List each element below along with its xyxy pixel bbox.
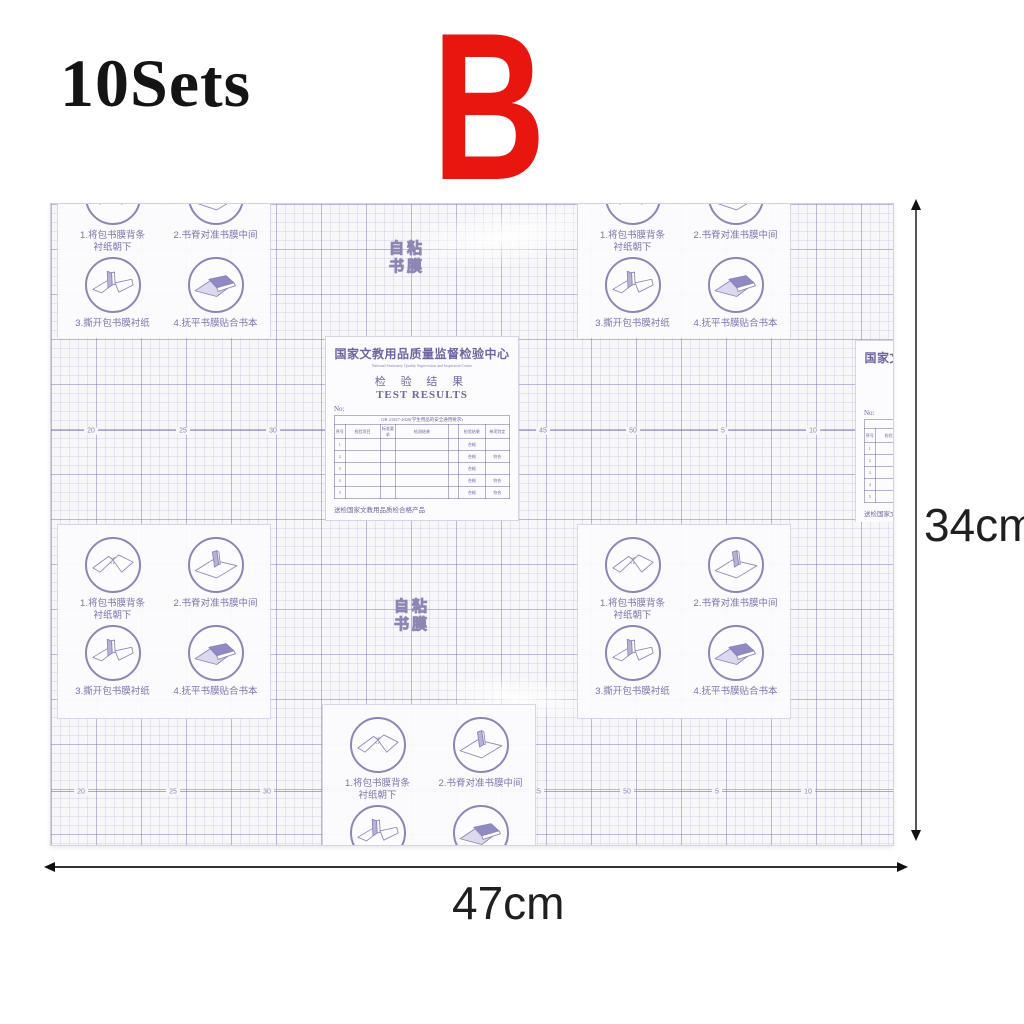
step-label: 1.将包书膜背条 衬纸朝下: [80, 230, 145, 255]
cert-cell: 合格: [459, 475, 485, 487]
cert-cell: [345, 439, 380, 451]
book-spine-align-icon: [458, 727, 504, 763]
step-label: 2.书脊对准书膜中间: [174, 598, 258, 622]
arrow-left-icon: [44, 862, 55, 872]
test-certificate: 国家文教用品质量监督检验中心 National Stationery Quali…: [855, 340, 893, 522]
step-label: 1.将包书膜背条 衬纸朝下: [80, 598, 145, 623]
instruction-step-4: 4.抚平书膜贴合书本: [685, 257, 786, 338]
cert-cell: [448, 439, 459, 451]
cert-header-cell: 检验项目: [875, 429, 893, 443]
cert-cell: [345, 463, 380, 475]
brand-char: 膜: [411, 616, 428, 633]
step-label: 3.撕开包书膜衬纸: [595, 318, 669, 338]
instruction-steps-panel: 1.将包书膜背条 衬纸朝下 2.书脊对准书膜中间 3.: [57, 524, 271, 719]
quantity-label: 10Sets: [60, 44, 251, 123]
brand-char: 自: [388, 240, 405, 257]
cert-cell: 符合: [485, 451, 510, 463]
cert-cell: [396, 475, 449, 487]
certificate-table: 序号检验项目标准要求检测结果检验结果单项判定 1合格2合格符合3合格4合格符合5…: [334, 424, 510, 499]
step-circle: [708, 204, 764, 225]
variant-letter: B: [432, 2, 546, 212]
peel-liner-icon: [355, 815, 401, 845]
step-label: 4.抚平书膜贴合书本: [694, 318, 778, 338]
instruction-step-4: 4.抚平书膜贴合书本: [165, 625, 266, 710]
brand-char: 粘: [406, 240, 423, 257]
width-dimension-label: 47cm: [452, 876, 564, 930]
cert-cell: 3: [335, 463, 346, 475]
cert-row: 5合格符合: [335, 487, 510, 499]
brand-char: 粘: [411, 598, 428, 615]
step-label: 2.书脊对准书膜中间: [694, 230, 778, 254]
cert-cell: [485, 463, 510, 475]
cert-cell: 1: [335, 439, 346, 451]
cert-row: 5合格符合: [865, 491, 894, 503]
instruction-step-3: 3.撕开包书膜衬纸: [582, 257, 683, 338]
step-label: 1.将包书膜背条 衬纸朝下: [600, 230, 665, 255]
instruction-steps-panel: 1.将包书膜背条 衬纸朝下 2.书脊对准书膜中间 3.: [322, 704, 536, 845]
open-book-icon: [610, 204, 656, 215]
cert-header-row: 序号检验项目标准要求检测结果检验结果单项判定: [335, 425, 510, 439]
instruction-step-2: 2.书脊对准书膜中间: [685, 537, 786, 623]
cert-header-cell: [448, 425, 459, 439]
cert-cell: [396, 487, 449, 499]
step-circle: [85, 625, 141, 681]
instruction-panel-bottom: 1.将包书膜背条 衬纸朝下 2.书脊对准书膜中间 3.: [322, 704, 536, 845]
certificate-center: 国家文教用品质量监督检验中心 National Stationery Quali…: [325, 336, 519, 521]
certificate-no-label: No:: [334, 405, 510, 413]
step-label: 2.书脊对准书膜中间: [174, 230, 258, 254]
brand-mark-self-adhesive-film: 自 粘 书 膜: [388, 240, 423, 275]
cert-cell: 合格: [459, 487, 485, 499]
step-label: 4.抚平书膜贴合书本: [694, 686, 778, 710]
instruction-step-1: 1.将包书膜背条 衬纸朝下: [62, 204, 163, 255]
step-circle: [188, 204, 244, 225]
cert-cell: [448, 451, 459, 463]
open-book-icon: [610, 547, 656, 583]
ruler-number: 25: [176, 428, 190, 435]
test-certificate: 国家文教用品质量监督检验中心 National Stationery Quali…: [325, 336, 519, 521]
instruction-step-3: 3.撕开包书膜衬纸: [327, 805, 428, 845]
instruction-panel-mid-left: 1.将包书膜背条 衬纸朝下 2.书脊对准书膜中间 3.: [57, 524, 271, 719]
instruction-step-3: 3.撕开包书膜衬纸: [62, 257, 163, 338]
peel-liner-icon: [610, 267, 656, 303]
step-circle: [605, 625, 661, 681]
ruler-number: 50: [620, 789, 634, 796]
ruler-number: 10: [801, 789, 815, 796]
instruction-step-2: 2.书脊对准书膜中间: [165, 537, 266, 623]
step-label: 4.抚平书膜贴合书本: [174, 686, 258, 710]
certificate-right-partial: 国家文教用品质量监督检验中心 National Stationery Quali…: [855, 340, 893, 522]
cert-cell: [448, 475, 459, 487]
step-circle: [605, 537, 661, 593]
step-label: 2.书脊对准书膜中间: [694, 598, 778, 622]
cert-cell: 符合: [485, 475, 510, 487]
instruction-steps-panel: 1.将包书膜背条 衬纸朝下 2.书脊对准书膜中间 3.: [577, 524, 791, 719]
certificate-standard: GB 21027-2020(学生用品的安全通用要求): [864, 419, 893, 428]
step-circle: [85, 537, 141, 593]
ruler-number: 20: [74, 789, 88, 796]
instruction-steps-panel: 1.将包书膜背条 衬纸朝下 2.书脊对准书膜中间 3.: [577, 204, 791, 338]
cert-header-cell: 检验结果: [459, 425, 485, 439]
cert-cell: 2: [335, 451, 346, 463]
peel-liner-icon: [90, 635, 136, 671]
brand-mark-self-adhesive-film: 自 粘 书 膜: [393, 598, 428, 633]
cert-header-cell: 标准要求: [380, 425, 396, 439]
cert-cell: [448, 487, 459, 499]
cert-row: 1合格: [335, 439, 510, 451]
instruction-step-2: 2.书脊对准书膜中间: [685, 204, 786, 255]
arrow-down-icon: [911, 830, 921, 841]
smooth-film-icon: [193, 267, 239, 303]
step-circle: [708, 257, 764, 313]
cert-header-cell: 检测结果: [396, 425, 449, 439]
step-circle: [453, 717, 509, 773]
cert-cell: 5: [335, 487, 346, 499]
open-book-icon: [355, 727, 401, 763]
book-cover-film-sheet: 20 25 30 45 50 5 10 20 25 30 45 50 5 10 …: [50, 203, 894, 846]
certificate-title: 检 验 结 果: [334, 373, 510, 389]
brand-mark-top: 自 粘 书 膜: [388, 240, 423, 275]
peel-liner-icon: [90, 267, 136, 303]
open-book-icon: [90, 204, 136, 215]
smooth-film-icon: [193, 635, 239, 671]
cert-cell: [380, 463, 396, 475]
cert-cell: [345, 487, 380, 499]
step-label: 1.将包书膜背条 衬纸朝下: [600, 598, 665, 623]
cert-row: 4合格符合: [335, 475, 510, 487]
certificate-no-label: No:: [864, 409, 893, 417]
ruler-number: 5: [712, 789, 722, 796]
cert-cell: [396, 439, 449, 451]
ruler-number: 30: [266, 428, 280, 435]
instruction-steps-panel: 1.将包书膜背条 衬纸朝下 2.书脊对准书膜中间 3.: [57, 204, 271, 338]
book-spine-align-icon: [193, 547, 239, 583]
arrow-up-icon: [911, 199, 921, 210]
instruction-step-3: 3.撕开包书膜衬纸: [582, 625, 683, 710]
book-spine-align-icon: [713, 204, 759, 215]
step-circle: [708, 625, 764, 681]
cert-cell: [875, 455, 893, 467]
instruction-step-1: 1.将包书膜背条 衬纸朝下: [582, 204, 683, 255]
certificate-org-name-en: National Stationery Quality Supervision …: [864, 367, 893, 372]
cert-cell: [875, 443, 893, 455]
instruction-step-1: 1.将包书膜背条 衬纸朝下: [327, 717, 428, 803]
cert-cell: [380, 475, 396, 487]
instruction-step-4: 4.抚平书膜贴合书本: [685, 625, 786, 710]
certificate-org-name: 国家文教用品质量监督检验中心: [864, 349, 893, 366]
step-circle: [605, 204, 661, 225]
certificate-title-en: TEST RESULTS: [334, 389, 510, 401]
brand-char: 书: [388, 258, 405, 275]
instruction-step-2: 2.书脊对准书膜中间: [165, 204, 266, 255]
cert-row: 4合格符合: [865, 479, 894, 491]
cert-cell: 3: [865, 467, 876, 479]
cert-cell: [875, 491, 893, 503]
cert-cell: 2: [865, 455, 876, 467]
instruction-step-4: 4.抚平书膜贴合书本: [430, 805, 531, 845]
instruction-step-3: 3.撕开包书膜衬纸: [62, 625, 163, 710]
cert-header-cell: 单项判定: [485, 425, 510, 439]
instruction-panel-mid-right: 1.将包书膜背条 衬纸朝下 2.书脊对准书膜中间 3.: [577, 524, 791, 719]
step-circle: [85, 204, 141, 225]
certificate-footer: 送检国家文教用品质检合格产品: [334, 504, 510, 514]
cert-cell: 符合: [485, 487, 510, 499]
step-circle: [350, 805, 406, 845]
certificate-table: 序号检验项目标准要求检测结果检验结果单项判定 1合格2合格符合3合格4合格符合5…: [864, 428, 893, 503]
step-label: 1.将包书膜背条 衬纸朝下: [345, 778, 410, 803]
cert-cell: 合格: [459, 451, 485, 463]
cert-cell: [380, 451, 396, 463]
peel-liner-icon: [610, 635, 656, 671]
cert-cell: 合格: [459, 439, 485, 451]
instruction-step-4: 4.抚平书膜贴合书本: [165, 257, 266, 338]
book-spine-align-icon: [713, 547, 759, 583]
step-circle: [188, 625, 244, 681]
cert-cell: 1: [865, 443, 876, 455]
cert-header-cell: 检验项目: [345, 425, 380, 439]
certificate-title-en: TEST RESULTS: [864, 393, 893, 405]
smooth-film-icon: [458, 815, 504, 845]
certificate-standard: GB 21027-2020(学生用品的安全通用要求): [334, 415, 510, 424]
ruler-number: 20: [84, 428, 98, 435]
step-label: 2.书脊对准书膜中间: [439, 778, 523, 802]
certificate-title: 检 验 结 果: [864, 377, 893, 393]
brand-char: 膜: [406, 258, 423, 275]
cert-row: 3合格: [335, 463, 510, 475]
cert-row: 2合格符合: [865, 455, 894, 467]
cert-cell: [875, 479, 893, 491]
step-label: 3.撕开包书膜衬纸: [75, 686, 149, 710]
cert-row: 2合格符合: [335, 451, 510, 463]
ruler-number: 45: [536, 428, 550, 435]
instruction-step-2: 2.书脊对准书膜中间: [430, 717, 531, 803]
brand-char: 书: [393, 616, 410, 633]
instruction-step-1: 1.将包书膜背条 衬纸朝下: [62, 537, 163, 623]
step-circle: [453, 805, 509, 845]
certificate-org-name: 国家文教用品质量监督检验中心: [334, 345, 510, 362]
ruler-number: 25: [166, 789, 180, 796]
step-label: 4.抚平书膜贴合书本: [174, 318, 258, 338]
cert-cell: 5: [865, 491, 876, 503]
cert-cell: [345, 475, 380, 487]
open-book-icon: [90, 547, 136, 583]
ruler-number: 10: [806, 428, 820, 435]
step-circle: [350, 717, 406, 773]
cert-cell: [380, 439, 396, 451]
height-dimension-label: 34cm: [924, 498, 1024, 552]
smooth-film-icon: [713, 635, 759, 671]
cert-header-cell: 序号: [865, 429, 876, 443]
cert-cell: [396, 451, 449, 463]
book-spine-align-icon: [193, 204, 239, 215]
cert-cell: 合格: [459, 463, 485, 475]
cert-cell: 4: [335, 475, 346, 487]
cert-cell: 4: [865, 479, 876, 491]
certificate-org-name-en: National Stationery Quality Supervision …: [334, 363, 510, 368]
step-circle: [188, 257, 244, 313]
instruction-panel-top-left: 1.将包书膜背条 衬纸朝下 2.书脊对准书膜中间 3.: [57, 204, 271, 338]
cert-cell: [448, 463, 459, 475]
smooth-film-icon: [713, 267, 759, 303]
step-circle: [605, 257, 661, 313]
height-dimension-line: [915, 206, 917, 838]
cert-cell: [380, 487, 396, 499]
ruler-number: 50: [626, 428, 640, 435]
cert-row: 3合格: [865, 467, 894, 479]
certificate-footer: 送检国家文教用品质检合格产品: [864, 508, 893, 518]
cert-cell: [396, 463, 449, 475]
arrow-right-icon: [897, 862, 908, 872]
ruler-number: 5: [718, 428, 728, 435]
cert-cell: [485, 439, 510, 451]
instruction-panel-top-right: 1.将包书膜背条 衬纸朝下 2.书脊对准书膜中间 3.: [577, 204, 791, 338]
width-dimension-line: [48, 866, 904, 868]
step-label: 3.撕开包书膜衬纸: [595, 686, 669, 710]
brand-char: 自: [393, 598, 410, 615]
cert-row: 1合格: [865, 443, 894, 455]
step-circle: [85, 257, 141, 313]
cert-header-row: 序号检验项目标准要求检测结果检验结果单项判定: [865, 429, 894, 443]
brand-mark-middle: 自 粘 书 膜: [393, 598, 428, 633]
instruction-step-1: 1.将包书膜背条 衬纸朝下: [582, 537, 683, 623]
cert-cell: [345, 451, 380, 463]
cert-header-cell: 序号: [335, 425, 346, 439]
cert-cell: [875, 467, 893, 479]
step-circle: [188, 537, 244, 593]
ruler-number: 30: [260, 789, 274, 796]
step-circle: [708, 537, 764, 593]
step-label: 3.撕开包书膜衬纸: [75, 318, 149, 338]
